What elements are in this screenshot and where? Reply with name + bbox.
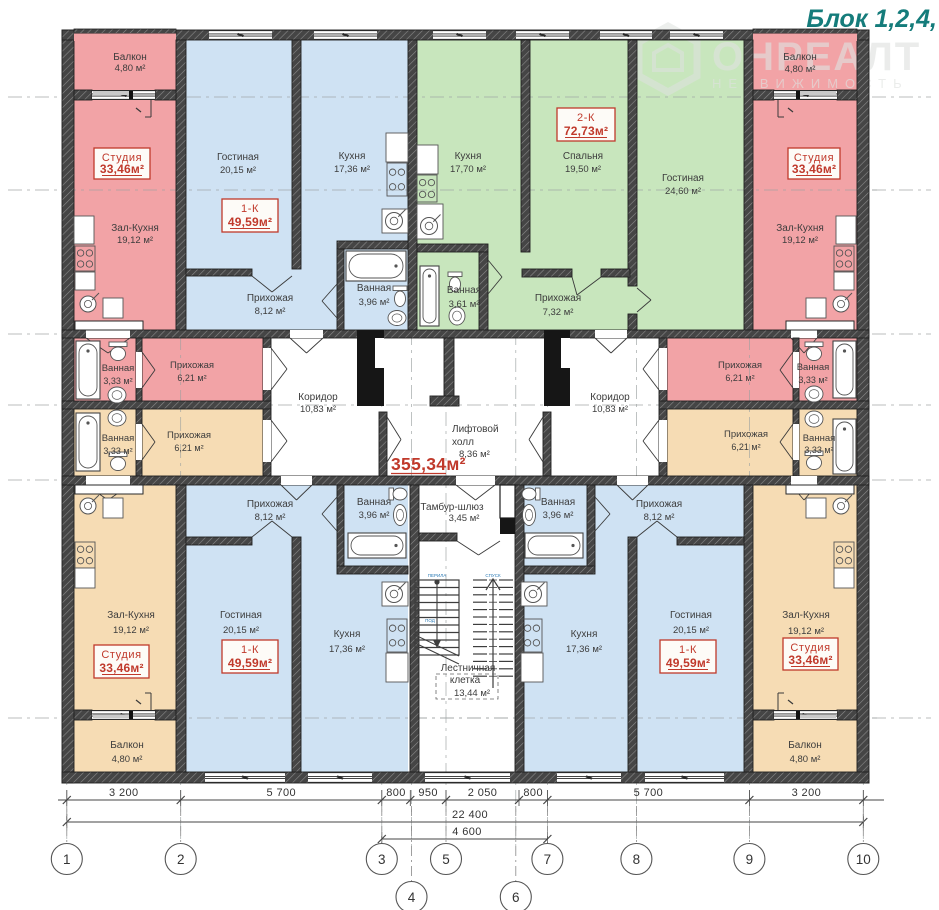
svg-text:3,45 м²: 3,45 м² — [449, 513, 480, 524]
svg-text:Балкон: Балкон — [788, 740, 822, 751]
svg-text:17,36 м²: 17,36 м² — [334, 164, 370, 175]
svg-text:Балкон: Балкон — [110, 740, 144, 751]
svg-text:33,46м²: 33,46м² — [788, 653, 832, 667]
svg-text:Блок 1,2,4,: Блок 1,2,4, — [806, 5, 937, 33]
svg-text:Зал-Кухня: Зал-Кухня — [107, 610, 155, 621]
svg-text:Гостиная: Гостиная — [662, 173, 704, 184]
svg-text:3 200: 3 200 — [792, 787, 822, 799]
svg-text:6,21 м²: 6,21 м² — [731, 442, 760, 452]
svg-text:3 200: 3 200 — [109, 787, 139, 799]
svg-text:4,80 м²: 4,80 м² — [112, 754, 143, 765]
svg-text:Спальня: Спальня — [563, 151, 603, 162]
svg-text:6,21 м²: 6,21 м² — [177, 373, 206, 383]
svg-text:Кухня: Кухня — [455, 151, 482, 162]
svg-text:Зал-Кухня: Зал-Кухня — [782, 610, 830, 621]
svg-text:49,59м²: 49,59м² — [666, 656, 710, 670]
svg-text:Зал-Кухня: Зал-Кухня — [776, 223, 824, 234]
svg-text:Балкон: Балкон — [113, 52, 147, 63]
svg-text:6,21 м²: 6,21 м² — [725, 373, 754, 383]
svg-text:Зал-Кухня: Зал-Кухня — [111, 223, 159, 234]
svg-text:3,33 м²: 3,33 м² — [103, 376, 132, 386]
svg-text:2 050: 2 050 — [468, 787, 498, 799]
svg-text:6,21 м²: 6,21 м² — [174, 443, 203, 453]
svg-text:17,70 м²: 17,70 м² — [450, 164, 486, 175]
svg-text:49,59м²: 49,59м² — [228, 215, 272, 229]
svg-text:Прихожая: Прихожая — [636, 499, 682, 510]
svg-text:Прихожая: Прихожая — [535, 293, 581, 304]
svg-text:Лифтовой: Лифтовой — [452, 423, 499, 435]
svg-text:3,33 м²: 3,33 м² — [804, 445, 833, 455]
svg-text:3,33 м²: 3,33 м² — [103, 446, 132, 456]
svg-text:4: 4 — [408, 890, 416, 905]
svg-text:Балкон: Балкон — [783, 52, 817, 63]
svg-text:Ванная: Ванная — [797, 362, 830, 373]
svg-text:1-К: 1-К — [241, 644, 259, 656]
svg-text:Гостиная: Гостиная — [670, 610, 712, 621]
svg-text:19,12 м²: 19,12 м² — [782, 235, 818, 246]
svg-text:20,15 м²: 20,15 м² — [673, 625, 709, 636]
svg-text:3,33 м²: 3,33 м² — [798, 375, 827, 385]
svg-text:1-К: 1-К — [241, 203, 259, 215]
svg-text:10,83 м²: 10,83 м² — [592, 404, 628, 415]
svg-text:8: 8 — [633, 852, 641, 867]
svg-text:СПУСК: СПУСК — [485, 573, 501, 578]
svg-text:20,15 м²: 20,15 м² — [223, 625, 259, 636]
svg-text:19,12 м²: 19,12 м² — [117, 235, 153, 246]
svg-text:Кухня: Кухня — [339, 151, 366, 162]
svg-text:Лестничная: Лестничная — [441, 663, 496, 674]
svg-text:Прихожая: Прихожая — [718, 360, 762, 371]
svg-text:Прихожая: Прихожая — [247, 499, 293, 510]
svg-text:5: 5 — [442, 852, 450, 867]
svg-text:1-К: 1-К — [679, 644, 697, 656]
svg-text:19,50 м²: 19,50 м² — [565, 164, 601, 175]
svg-text:800: 800 — [386, 787, 406, 799]
svg-text:Ванная: Ванная — [447, 285, 481, 296]
svg-text:2: 2 — [177, 852, 185, 867]
svg-text:Гостиная: Гостиная — [217, 152, 259, 163]
svg-text:3,96 м²: 3,96 м² — [359, 510, 390, 521]
svg-text:ПЕРИЛА: ПЕРИЛА — [428, 573, 446, 578]
svg-text:4,80 м²: 4,80 м² — [115, 63, 146, 74]
svg-text:33,46м²: 33,46м² — [100, 162, 144, 176]
svg-text:клетка: клетка — [450, 675, 481, 686]
svg-text:ПОД: ПОД — [425, 618, 435, 623]
svg-text:Коридор: Коридор — [590, 392, 630, 403]
svg-text:Ванная: Ванная — [357, 497, 391, 508]
svg-text:10: 10 — [856, 852, 871, 867]
svg-text:20,15 м²: 20,15 м² — [220, 165, 256, 176]
svg-text:24,60 м²: 24,60 м² — [665, 186, 701, 197]
svg-text:72,73м²: 72,73м² — [564, 124, 608, 138]
svg-text:19,12 м²: 19,12 м² — [788, 626, 824, 637]
svg-text:17,36 м²: 17,36 м² — [566, 644, 602, 655]
svg-text:49,59м²: 49,59м² — [228, 656, 272, 670]
svg-text:800: 800 — [523, 787, 543, 799]
svg-text:2-К: 2-К — [577, 112, 595, 124]
svg-text:Ванная: Ванная — [803, 433, 836, 444]
svg-text:Тамбур-шлюз: Тамбур-шлюз — [420, 501, 484, 513]
svg-text:355,34м²: 355,34м² — [391, 454, 466, 474]
svg-text:Ванная: Ванная — [357, 283, 391, 294]
svg-text:3: 3 — [378, 852, 386, 867]
svg-text:Ванная: Ванная — [541, 497, 575, 508]
svg-text:4,80 м²: 4,80 м² — [790, 754, 821, 765]
svg-text:3,61 м²: 3,61 м² — [449, 299, 480, 310]
svg-text:НЕДВИЖИМОСТЬ: НЕДВИЖИМОСТЬ — [712, 76, 909, 91]
svg-text:5 700: 5 700 — [634, 787, 664, 799]
svg-text:8,12 м²: 8,12 м² — [255, 306, 286, 317]
svg-text:Гостиная: Гостиная — [220, 610, 262, 621]
svg-text:5 700: 5 700 — [266, 787, 296, 799]
svg-text:8,12 м²: 8,12 м² — [255, 512, 286, 523]
svg-text:6: 6 — [512, 890, 520, 905]
svg-text:13,44 м²: 13,44 м² — [454, 688, 490, 699]
svg-text:3,96 м²: 3,96 м² — [543, 510, 574, 521]
svg-text:22 400: 22 400 — [452, 809, 488, 821]
svg-text:3,96 м²: 3,96 м² — [359, 297, 390, 308]
svg-text:Ванная: Ванная — [102, 433, 135, 444]
svg-text:10,83 м²: 10,83 м² — [300, 404, 336, 415]
svg-text:Коридор: Коридор — [298, 392, 338, 403]
svg-text:8,12 м²: 8,12 м² — [644, 512, 675, 523]
svg-text:Прихожая: Прихожая — [170, 360, 214, 371]
svg-text:холл: холл — [452, 437, 474, 448]
svg-text:Ванная: Ванная — [102, 363, 135, 374]
svg-text:17,36 м²: 17,36 м² — [329, 644, 365, 655]
svg-text:7: 7 — [544, 852, 552, 867]
svg-text:Прихожая: Прихожая — [724, 429, 768, 440]
svg-text:Прихожая: Прихожая — [167, 430, 211, 441]
svg-text:Кухня: Кухня — [334, 629, 361, 640]
svg-text:Студия: Студия — [101, 649, 141, 661]
svg-text:4,80 м²: 4,80 м² — [785, 64, 816, 75]
svg-text:9: 9 — [746, 852, 754, 867]
svg-text:1: 1 — [63, 852, 71, 867]
svg-text:Прихожая: Прихожая — [247, 293, 293, 304]
svg-text:7,32 м²: 7,32 м² — [543, 307, 574, 318]
svg-text:Кухня: Кухня — [571, 629, 598, 640]
svg-text:950: 950 — [418, 787, 438, 799]
svg-text:4 600: 4 600 — [452, 826, 482, 838]
svg-text:19,12 м²: 19,12 м² — [113, 625, 149, 636]
svg-text:33,46м²: 33,46м² — [792, 162, 836, 176]
svg-text:33,46м²: 33,46м² — [99, 661, 143, 675]
